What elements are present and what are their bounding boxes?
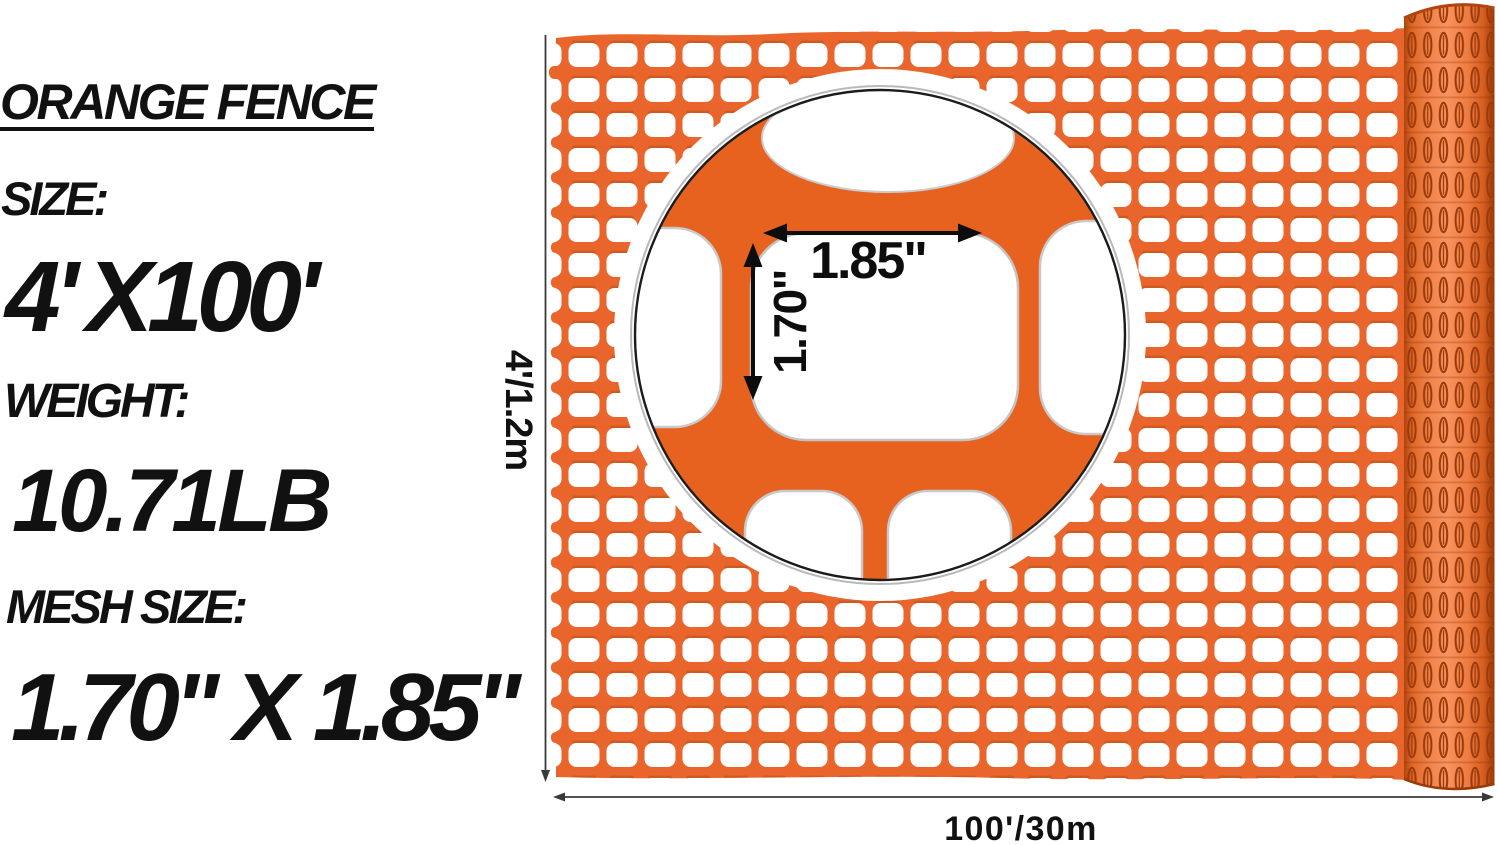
svg-text:1.70": 1.70" [764, 270, 816, 374]
svg-text:1.85": 1.85" [810, 232, 926, 290]
svg-text:100'/30m: 100'/30m [944, 810, 1098, 845]
svg-text:4'/1.2m: 4'/1.2m [497, 350, 539, 470]
